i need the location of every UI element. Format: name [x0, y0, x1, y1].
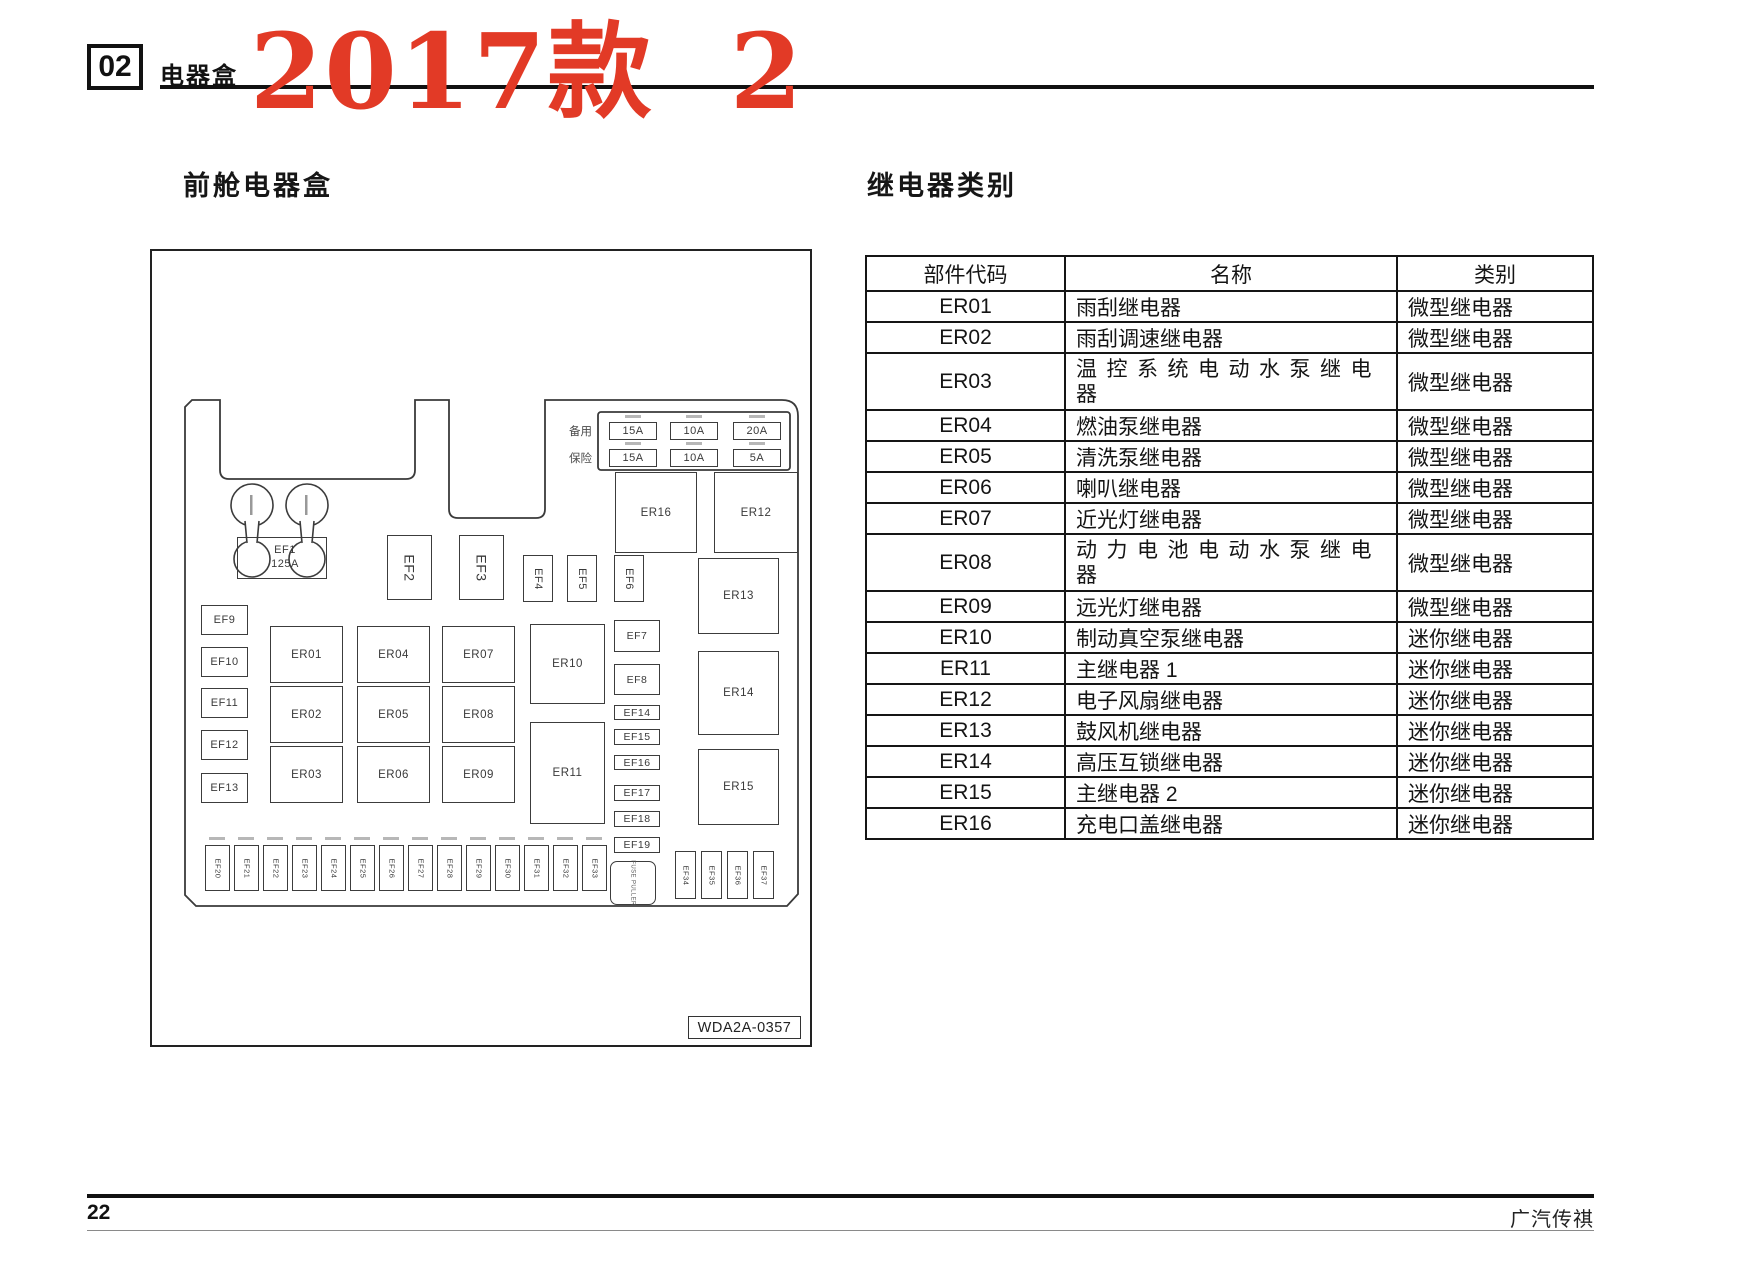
table-header-row: 部件代码 名称 类别 — [867, 257, 1592, 290]
table-row: ER13 鼓风机继电器 迷你继电器 — [867, 714, 1592, 745]
bottom-fuse-strip-right: EF34EF35EF36EF37 — [152, 251, 814, 1049]
fuse-tick-mark — [325, 837, 341, 840]
category-cell: 迷你继电器 — [1396, 654, 1592, 683]
part-code-cell: ER09 — [867, 592, 1064, 621]
fuse-box: EF34 — [675, 851, 696, 899]
fuse-tick-mark — [625, 442, 641, 445]
fuse-tick-mark — [412, 837, 428, 840]
model-year-watermark: 2017款 2 — [250, 20, 804, 124]
relay-table: 部件代码 名称 类别 ER01 雨刮继电器 微型继电器 ER02 雨刮调速继电器… — [865, 255, 1594, 840]
relay-er16-label: ER16 — [641, 507, 672, 519]
footer-rule — [87, 1194, 1594, 1198]
category-cell: 微型继电器 — [1396, 592, 1592, 621]
category-cell: 迷你继电器 — [1396, 778, 1592, 807]
name-cell: 温控系统电动水泵继电器 — [1064, 354, 1396, 409]
category-cell: 微型继电器 — [1396, 504, 1592, 533]
name-cell: 充电口盖继电器 — [1064, 809, 1396, 838]
header-name: 名称 — [1064, 257, 1396, 290]
fuse-puller-box: FUSE PULLER — [610, 861, 656, 905]
part-code-cell: ER15 — [867, 778, 1064, 807]
category-cell: 迷你继电器 — [1396, 685, 1592, 714]
category-cell: 迷你继电器 — [1396, 716, 1592, 745]
name-cell: 制动真空泵继电器 — [1064, 623, 1396, 652]
name-cell: 高压互锁继电器 — [1064, 747, 1396, 776]
brand-name: 广汽传祺 — [1394, 1203, 1594, 1232]
table-row: ER05 清洗泵继电器 微型继电器 — [867, 440, 1592, 471]
fuse-tick-mark — [383, 837, 399, 840]
table-row: ER08 动力电池电动水泵继电器 微型继电器 — [867, 533, 1592, 590]
part-code-cell: ER03 — [867, 354, 1064, 409]
part-code-cell: ER05 — [867, 442, 1064, 471]
category-cell: 微型继电器 — [1396, 323, 1592, 352]
fuse-box: EF36 — [727, 851, 748, 899]
relay-er10-box: ER10 — [530, 624, 605, 704]
category-cell: 迷你继电器 — [1396, 623, 1592, 652]
chapter-number: 02 — [98, 50, 131, 84]
name-cell: 近光灯继电器 — [1064, 504, 1396, 533]
name-cell: 主继电器 2 — [1064, 778, 1396, 807]
part-code-cell: ER14 — [867, 747, 1064, 776]
table-row: ER01 雨刮继电器 微型继电器 — [867, 290, 1592, 321]
fuse-tick-mark — [238, 837, 254, 840]
fuse-tick-mark — [354, 837, 370, 840]
name-cell: 清洗泵继电器 — [1064, 442, 1396, 471]
part-code-cell: ER04 — [867, 411, 1064, 440]
fuse-tick-mark — [557, 837, 573, 840]
category-cell: 微型继电器 — [1396, 354, 1592, 409]
relay-er12-box: ER12 — [714, 472, 798, 553]
fuse-tick-mark — [749, 442, 765, 445]
table-row: ER09 远光灯继电器 微型继电器 — [867, 590, 1592, 621]
relay-er10-label: ER10 — [552, 658, 583, 670]
header-category: 类别 — [1396, 257, 1592, 290]
fuse-tick-mark — [749, 415, 765, 418]
part-code-cell: ER11 — [867, 654, 1064, 683]
name-cell: 雨刮调速继电器 — [1064, 323, 1396, 352]
page-number: 22 — [87, 1201, 110, 1225]
relay-er16-box: ER16 — [615, 472, 697, 553]
relay-er12-label: ER12 — [741, 507, 772, 519]
part-code-cell: ER06 — [867, 473, 1064, 502]
part-code-cell: ER07 — [867, 504, 1064, 533]
table-row: ER07 近光灯继电器 微型继电器 — [867, 502, 1592, 533]
category-cell: 迷你继电器 — [1396, 809, 1592, 838]
chapter-number-box: 02 — [87, 44, 143, 90]
category-cell: 微型继电器 — [1396, 473, 1592, 502]
name-cell: 主继电器 1 — [1064, 654, 1396, 683]
fusebox-diagram-frame: 备用 保险 15A10A20A 15A10A5A EF1 125A EF2EF3… — [150, 249, 812, 1047]
table-row: ER16 充电口盖继电器 迷你继电器 — [867, 807, 1592, 838]
fuse-tick-mark — [441, 837, 457, 840]
fuse-tick-mark — [470, 837, 486, 840]
category-cell: 微型继电器 — [1396, 292, 1592, 321]
fuse-box: EF35 — [701, 851, 722, 899]
part-code-cell: ER13 — [867, 716, 1064, 745]
table-row: ER15 主继电器 2 迷你继电器 — [867, 776, 1592, 807]
name-cell: 电子风扇继电器 — [1064, 685, 1396, 714]
part-code-cell: ER08 — [867, 535, 1064, 590]
part-code-cell: ER16 — [867, 809, 1064, 838]
name-cell: 远光灯继电器 — [1064, 592, 1396, 621]
part-code-cell: ER02 — [867, 323, 1064, 352]
fuse-tick-mark — [267, 837, 283, 840]
front-fusebox-title: 前舱电器盒 — [183, 164, 333, 203]
table-row: ER12 电子风扇继电器 迷你继电器 — [867, 683, 1592, 714]
name-cell: 喇叭继电器 — [1064, 473, 1396, 502]
relay-category-title: 继电器类别 — [867, 164, 1017, 203]
category-cell: 微型继电器 — [1396, 442, 1592, 471]
fuse-tick-mark — [625, 415, 641, 418]
fuse-box: EF37 — [753, 851, 774, 899]
drawing-code-box: WDA2A-0357 — [688, 1016, 801, 1039]
category-cell: 迷你继电器 — [1396, 747, 1592, 776]
drawing-code: WDA2A-0357 — [698, 1020, 792, 1036]
table-row: ER04 燃油泵继电器 微型继电器 — [867, 409, 1592, 440]
fuse-puller-label: FUSE PULLER — [630, 860, 636, 905]
table-row: ER14 高压互锁继电器 迷你继电器 — [867, 745, 1592, 776]
category-cell: 微型继电器 — [1396, 411, 1592, 440]
table-row: ER06 喇叭继电器 微型继电器 — [867, 471, 1592, 502]
fuse-tick-mark — [499, 837, 515, 840]
name-cell: 动力电池电动水泵继电器 — [1064, 535, 1396, 590]
name-cell: 鼓风机继电器 — [1064, 716, 1396, 745]
header-part-code: 部件代码 — [867, 257, 1064, 290]
name-cell: 燃油泵继电器 — [1064, 411, 1396, 440]
table-row: ER02 雨刮调速继电器 微型继电器 — [867, 321, 1592, 352]
part-code-cell: ER01 — [867, 292, 1064, 321]
fuse-tick-mark — [209, 837, 225, 840]
footer-thin-rule — [87, 1230, 1594, 1231]
table-row: ER03 温控系统电动水泵继电器 微型继电器 — [867, 352, 1592, 409]
relay-er11-label: ER11 — [553, 767, 583, 779]
part-code-cell: ER10 — [867, 623, 1064, 652]
fuse-tick-mark — [528, 837, 544, 840]
table-row: ER10 制动真空泵继电器 迷你继电器 — [867, 621, 1592, 652]
relay-er11-box: ER11 — [530, 722, 605, 824]
part-code-cell: ER12 — [867, 685, 1064, 714]
fuse-tick-mark — [686, 442, 702, 445]
fuse-tick-mark — [296, 837, 312, 840]
table-row: ER11 主继电器 1 迷你继电器 — [867, 652, 1592, 683]
category-cell: 微型继电器 — [1396, 535, 1592, 590]
name-cell: 雨刮继电器 — [1064, 292, 1396, 321]
fuse-tick-mark — [586, 837, 602, 840]
fuse-tick-mark — [686, 415, 702, 418]
